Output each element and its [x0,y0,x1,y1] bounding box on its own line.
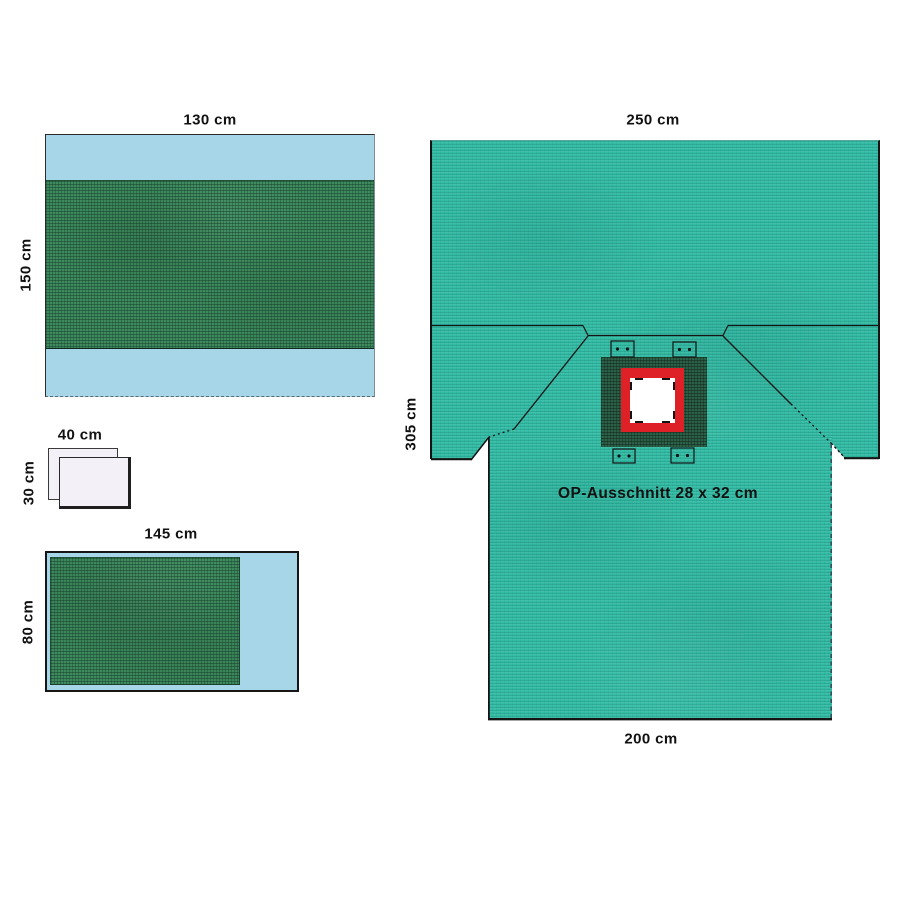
label-aperture-size: OP-Ausschnitt 28 x 32 cm [558,485,758,503]
label-main-drape-height: 305 cm [403,397,420,450]
label-top-left-drape-width: 130 cm [183,112,236,129]
surgical-drape-set-diagram: 130 cm 150 cm 40 cm 30 cm 145 cm 80 cm 2… [0,0,900,900]
top-left-drape-absorbent-band [46,180,374,349]
op-aperture-opening [630,378,675,423]
label-sheets-height: 30 cm [21,461,38,506]
sheet-front [59,457,131,509]
top-left-drape [45,134,375,397]
main-drape-lower-section [488,437,832,720]
label-top-left-drape-height: 150 cm [18,238,35,291]
label-bottom-left-drape-width: 145 cm [144,526,197,543]
bottom-left-drape-absorbent-pad [50,557,240,685]
bottom-left-drape [45,551,299,692]
label-main-drape-bottom-width: 200 cm [624,731,677,748]
label-sheets-width: 40 cm [58,427,103,444]
label-main-drape-top-width: 250 cm [626,112,679,129]
label-bottom-left-drape-height: 80 cm [20,600,37,645]
